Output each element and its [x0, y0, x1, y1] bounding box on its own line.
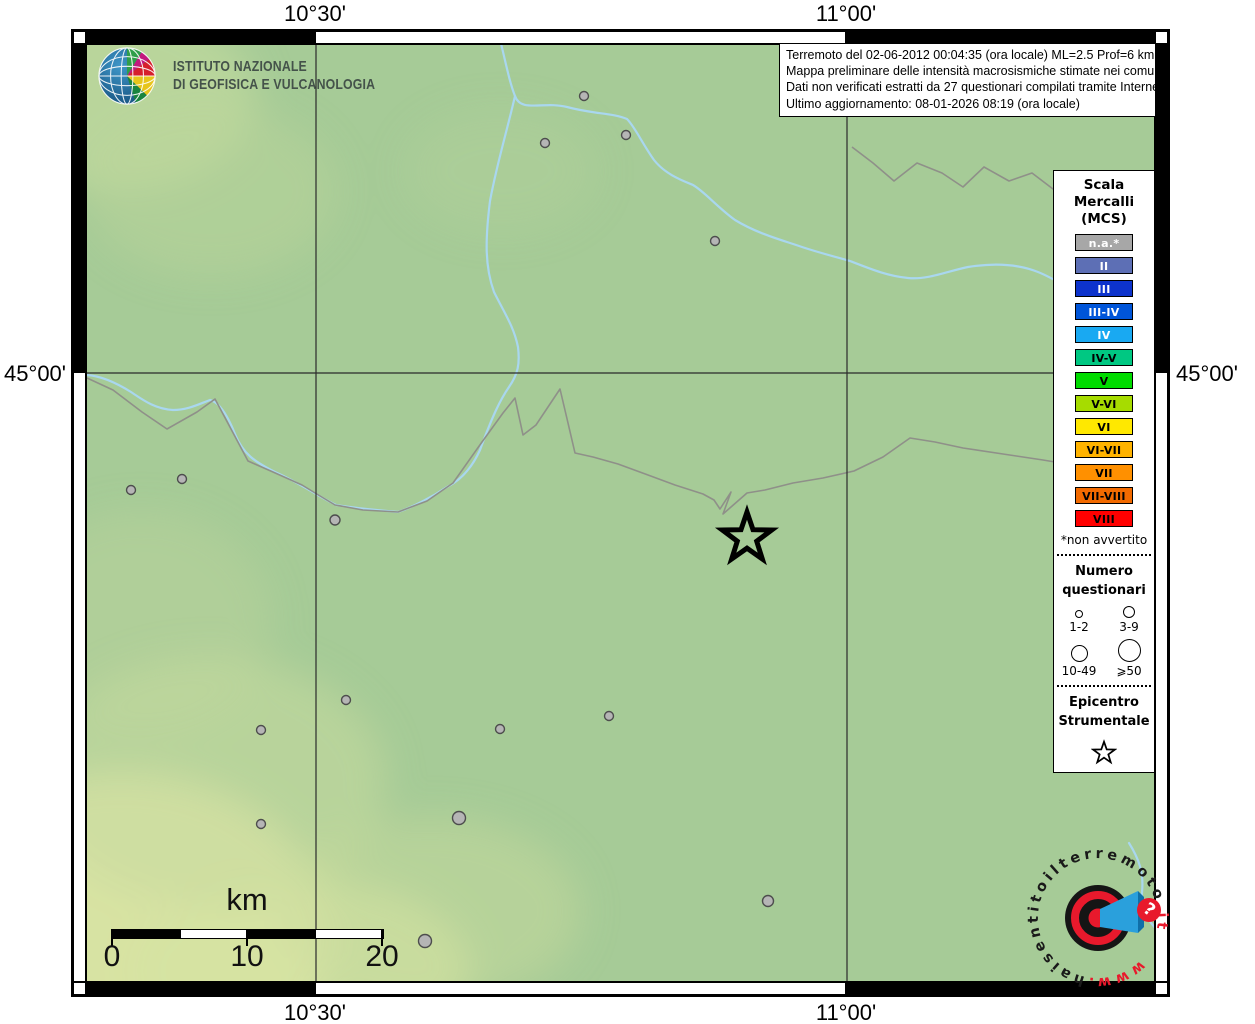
questionnaire-dot	[330, 515, 340, 525]
intensity-swatch: V	[1075, 372, 1133, 389]
intensity-swatch: III-IV	[1075, 303, 1133, 320]
questionnaire-dot	[580, 92, 589, 101]
frame-band	[73, 44, 86, 372]
lon-label-top-left: 10°30'	[284, 1, 346, 27]
frame-corner	[73, 982, 86, 995]
frame-band	[73, 372, 86, 982]
info-line: Terremoto del 02-06-2012 00:04:35 (ora l…	[786, 47, 1149, 63]
legend-title: Scala Mercalli (MCS)	[1054, 177, 1154, 228]
info-line: Ultimo aggiornamento: 08-01-2026 08:19 (…	[786, 96, 1149, 112]
questionnaire-dot	[257, 820, 266, 829]
intensity-swatch: VIII	[1075, 510, 1133, 527]
questionnaire-dot	[496, 725, 505, 734]
ingv-logo: ISTITUTO NAZIONALE DI GEOFISICA E VULCAN…	[97, 45, 420, 107]
map-canvas	[87, 45, 1154, 981]
questionnaire-dot	[419, 935, 432, 948]
lon-label-bottom-right: 11°00'	[816, 1000, 876, 1024]
intensity-swatch: V-VI	[1075, 395, 1133, 412]
legend-divider	[1057, 685, 1151, 687]
intensity-swatch: n.a.*	[1075, 234, 1133, 251]
questionnaire-dot	[763, 896, 774, 907]
intensity-swatch: VI	[1075, 418, 1133, 435]
frame-corner	[73, 31, 86, 44]
map-frame	[71, 29, 1170, 997]
frame-band	[315, 31, 846, 44]
frame-band	[86, 31, 315, 44]
questionnaire-dot	[127, 486, 136, 495]
ingv-title: ISTITUTO NAZIONALE DI GEOFISICA E VULCAN…	[173, 58, 375, 94]
questionnaire-count-title: Numero questionari	[1054, 562, 1154, 600]
questionnaire-dot	[622, 131, 631, 140]
intensity-scale: n.a.* II III III-IV IV IV-V V V-VI VI VI…	[1054, 234, 1154, 527]
questionnaire-dot	[178, 475, 187, 484]
questionnaire-size-icon	[1075, 610, 1083, 618]
frame-band	[1155, 44, 1168, 372]
questionnaire-dot	[342, 696, 351, 705]
epicenter-legend-title: Epicentro Strumentale	[1054, 693, 1154, 731]
questionnaire-size-icon	[1071, 645, 1088, 662]
intensity-swatch: VII	[1075, 464, 1133, 481]
questionnaire-size-icon	[1118, 639, 1141, 662]
frame-corner	[1155, 31, 1168, 44]
info-line: Dati non verificati estratti da 27 quest…	[786, 79, 1149, 95]
frame-band	[315, 982, 846, 995]
questionnaire-dot	[541, 139, 550, 148]
legend-footnote: *non avvertito	[1054, 533, 1154, 547]
epicenter-legend-icon	[1091, 739, 1117, 765]
scalebar-label: 20	[365, 940, 398, 974]
intensity-swatch: IV	[1075, 326, 1133, 343]
scalebar	[112, 929, 384, 939]
map-area	[86, 44, 1155, 982]
intensity-swatch: VII-VIII	[1075, 487, 1133, 504]
intensity-swatch: IV-V	[1075, 349, 1133, 366]
info-line: Mappa preliminare delle intensità macros…	[786, 63, 1149, 79]
haisentito-logo: ? www.haisentitoilterremoto.it	[1022, 840, 1174, 996]
earthquake-info-box: Terremoto del 02-06-2012 00:04:35 (ora l…	[779, 43, 1156, 117]
legend-divider	[1057, 554, 1151, 556]
questionnaire-dot	[257, 726, 266, 735]
frame-band	[86, 982, 315, 995]
questionnaire-size-icon	[1123, 606, 1135, 618]
lon-label-bottom-left: 10°30'	[284, 1000, 346, 1024]
macroseismic-map-page: 10°30' 11°00' 10°30' 11°00' 45°00' 45°00…	[0, 0, 1255, 1024]
legend-panel: Scala Mercalli (MCS) n.a.* II III III-IV…	[1053, 170, 1155, 773]
questionnaire-dot	[605, 712, 614, 721]
intensity-swatch: II	[1075, 257, 1133, 274]
questionnaire-sizes: 1-2 3-9 10-49 ⩾50	[1054, 606, 1154, 678]
scalebar-unit: km	[226, 882, 267, 918]
lat-label-left: 45°00'	[0, 361, 66, 387]
intensity-swatch: III	[1075, 280, 1133, 297]
intensity-swatch: VI-VII	[1075, 441, 1133, 458]
lat-label-right: 45°00'	[1176, 361, 1238, 387]
scalebar-label: 0	[104, 940, 121, 974]
ingv-globe-icon	[97, 45, 159, 107]
questionnaire-dot	[711, 237, 720, 246]
scalebar-label: 10	[230, 940, 263, 974]
questionnaire-dot	[453, 812, 466, 825]
lon-label-top-right: 11°00'	[816, 1, 876, 27]
